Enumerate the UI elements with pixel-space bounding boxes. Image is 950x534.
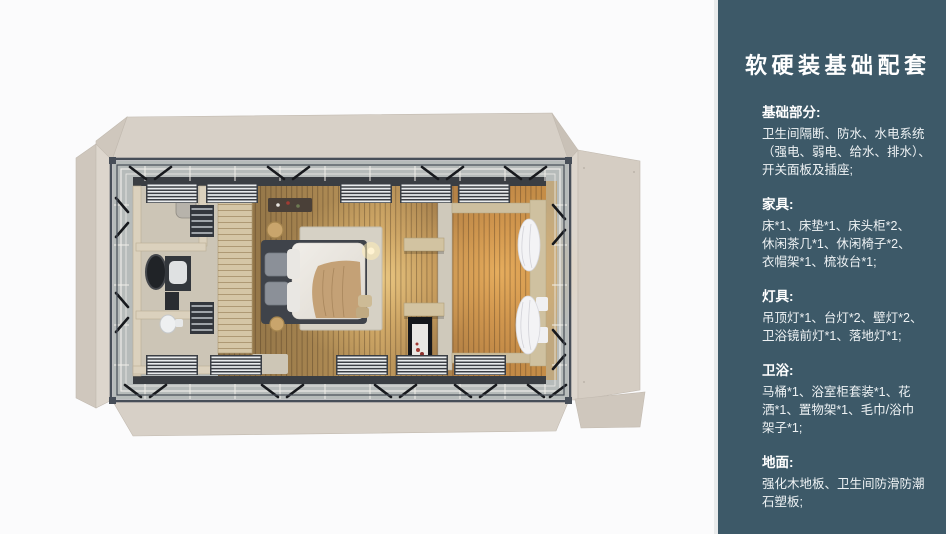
curtain-2 — [516, 296, 540, 354]
panel-bottom — [112, 400, 569, 436]
section-basics-body: 卫生间隔断、防水、水电系统 （强电、弱电、给水、排水）、 开关面板及插座; — [762, 125, 932, 179]
basket-2 — [270, 317, 284, 331]
pod-wall-left — [133, 186, 141, 376]
floorplan-svg — [0, 0, 714, 534]
section-flooring: 地面: 强化木地板、卫生间防滑防潮 石塑板; — [762, 454, 932, 511]
section-lighting-heading: 灯具: — [762, 288, 932, 305]
section-lighting-body: 吊顶灯*1、台灯*2、壁灯*2、 卫浴镜前灯*1、落地灯*1; — [762, 309, 932, 345]
pillow-white-2 — [287, 282, 300, 312]
section-flooring-body: 强化木地板、卫生间防滑防潮 石塑板; — [762, 475, 932, 511]
section-lighting: 灯具: 吊顶灯*1、台灯*2、壁灯*2、 卫浴镜前灯*1、落地灯*1; — [762, 288, 932, 345]
throw-blanket — [312, 261, 362, 318]
wardrobe — [218, 189, 252, 353]
pod-divider-1 — [136, 243, 206, 251]
section-basics-heading: 基础部分: — [762, 104, 932, 121]
floor-cushion-2 — [356, 307, 369, 318]
panel-right — [578, 150, 640, 400]
vanity-stool — [165, 292, 179, 310]
section-basics: 基础部分: 卫生间隔断、防水、水电系统 （强电、弱电、给水、排水）、 开关面板及… — [762, 104, 932, 179]
section-furniture-body: 床*1、床垫*1、床头柜*2、 休闲茶几*1、休闲椅子*2、 衣帽架*1、梳妆台… — [762, 217, 932, 271]
basket-1 — [267, 222, 283, 238]
toilet — [160, 315, 176, 333]
panel-left-inner — [96, 144, 112, 408]
table-lamp — [368, 248, 375, 255]
vanity-mirror — [146, 255, 166, 289]
shelf-board-2 — [404, 303, 444, 316]
section-furniture-heading: 家具: — [762, 196, 932, 213]
panel-top — [112, 113, 569, 160]
section-bathroom: 卫浴: 马桶*1、浴室柜套装*1、花 洒*1、置物架*1、毛巾/浴巾 架子*1; — [762, 362, 932, 437]
towel-radiator-1 — [190, 205, 214, 237]
section-flooring-heading: 地面: — [762, 454, 932, 471]
spec-panel: 软硬装基础配套 基础部分: 卫生间隔断、防水、水电系统 （强电、弱电、给水、排水… — [714, 0, 946, 534]
divider-wall — [438, 189, 452, 370]
wall-shelf — [268, 198, 312, 212]
section-furniture: 家具: 床*1、床垫*1、床头柜*2、 休闲茶几*1、休闲椅子*2、 衣帽架*1… — [762, 196, 932, 271]
panel-title: 软硬装基础配套 — [745, 48, 932, 80]
vanity-sink — [169, 261, 187, 284]
shelf-board-1 — [404, 238, 444, 251]
floorplan-render — [0, 0, 714, 534]
pillow-gray-2 — [265, 282, 289, 305]
panel-left-outer — [76, 144, 96, 408]
section-bathroom-heading: 卫浴: — [762, 362, 932, 379]
pillow-gray-1 — [265, 253, 289, 276]
floor-cushion-1 — [358, 295, 372, 307]
towel-radiator-2 — [190, 302, 214, 334]
interior — [133, 177, 582, 384]
wall-bottom — [133, 376, 546, 384]
spec-sections: 基础部分: 卫生间隔断、防水、水电系统 （强电、弱电、给水、排水）、 开关面板及… — [762, 104, 932, 511]
bathroom-pod — [133, 186, 218, 376]
pillow-white-1 — [287, 249, 300, 279]
section-bathroom-body: 马桶*1、浴室柜套装*1、花 洒*1、置物架*1、毛巾/浴巾 架子*1; — [762, 383, 932, 437]
slide: 软硬装基础配套 基础部分: 卫生间隔断、防水、水电系统 （强电、弱电、给水、排水… — [0, 0, 950, 534]
toilet-tank — [175, 319, 183, 327]
